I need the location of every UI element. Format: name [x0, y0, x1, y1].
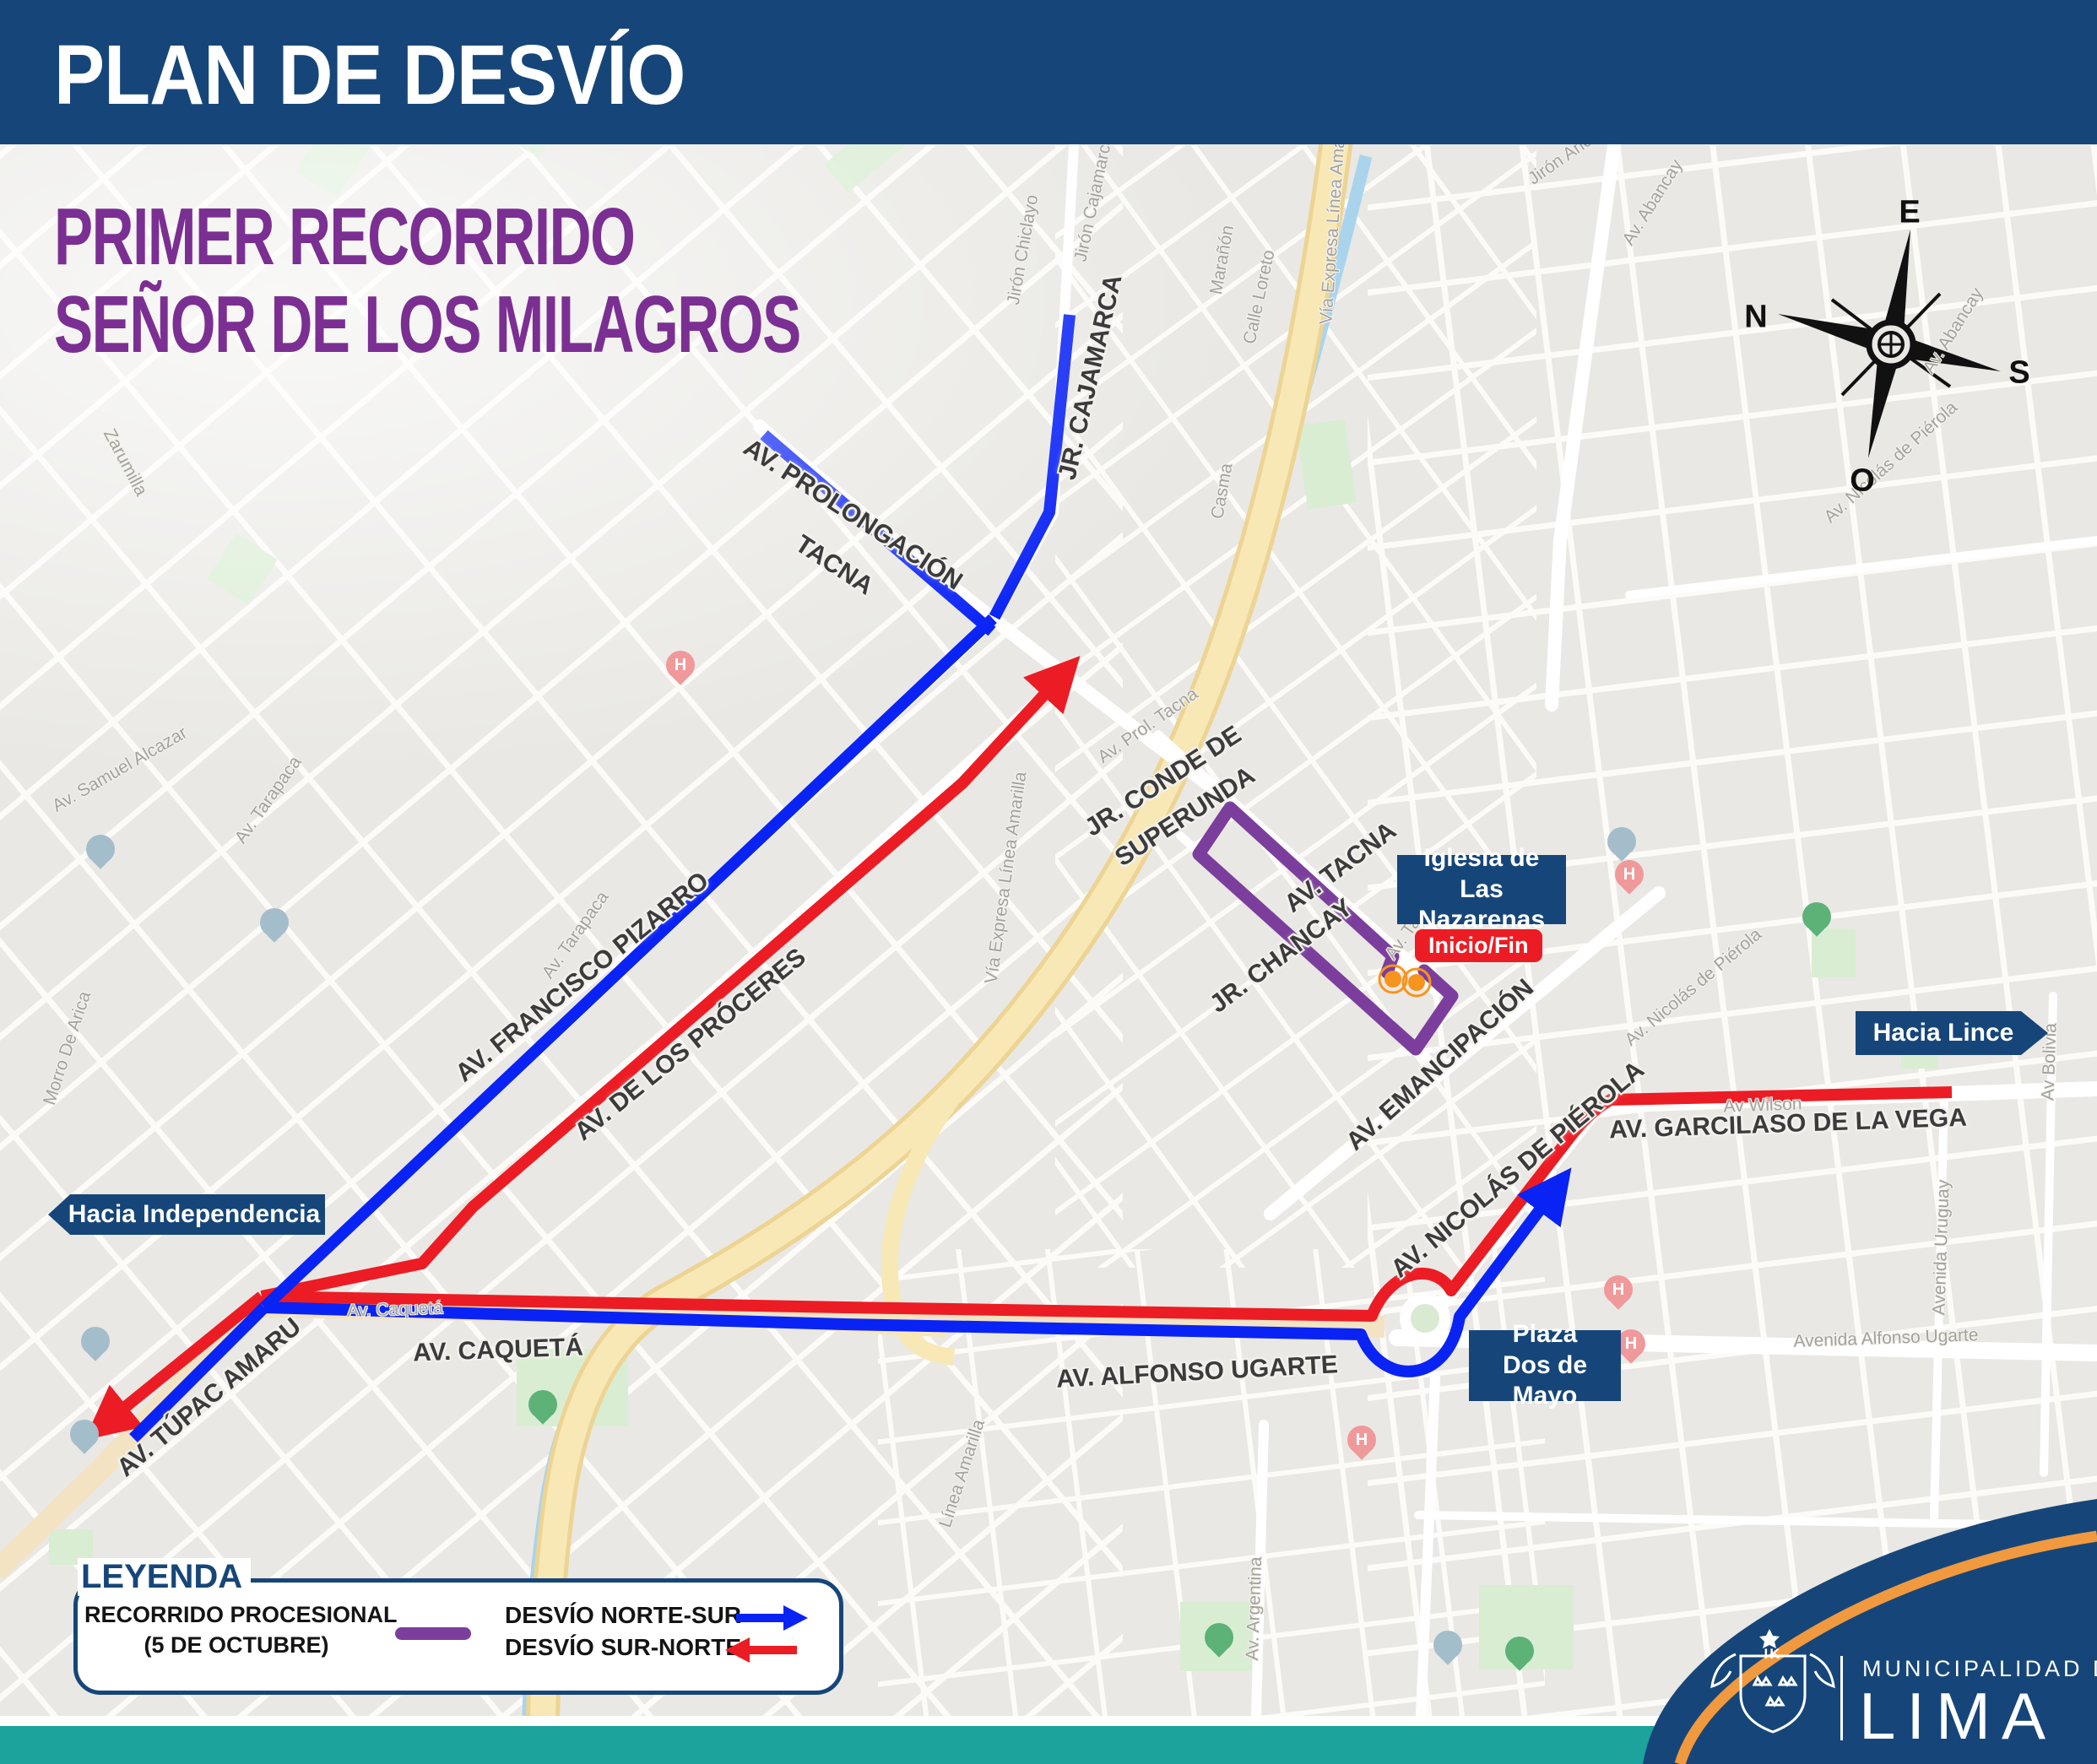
- route-label-caqueta: AV. CAQUETÁ: [413, 1333, 584, 1367]
- plaza-line1: Plaza: [1469, 1319, 1621, 1350]
- legend-purple-line-sample: [395, 1627, 471, 1640]
- landmark-pin-icon: [1433, 1631, 1462, 1659]
- park-pin-icon: [1802, 902, 1831, 931]
- hospital-pin-icon: H: [1347, 1426, 1376, 1454]
- subtitle-line2: SEÑOR DE LOS MILAGROS: [54, 279, 800, 371]
- hospital-letter: H: [675, 656, 686, 675]
- compass-west-label: O: [1850, 463, 1875, 500]
- legend-red-arrow-icon: [736, 1646, 797, 1654]
- compass-south-label: S: [2008, 355, 2029, 392]
- legend-title: LEYENDA: [78, 1558, 251, 1596]
- legend-blue-arrow-icon: [736, 1614, 797, 1622]
- footer-city-label: LIMA: [1859, 1678, 2056, 1755]
- hospital-pin-icon: H: [1617, 1329, 1645, 1358]
- hacia-independencia-label: Hacia Independencia: [63, 1199, 325, 1231]
- landmark-pin-icon: [1607, 827, 1636, 856]
- park-pin-icon: [528, 1390, 557, 1419]
- legend-norte-sur-label: DESVÍO NORTE-SUR: [505, 1602, 741, 1629]
- subtitle-line1: PRIMER RECORRIDO: [54, 191, 634, 284]
- coat-monogram: IK: [1764, 1646, 1782, 1663]
- compass-east-label: E: [1899, 195, 1920, 231]
- footer-divider: [1840, 1656, 1843, 1740]
- hospital-pin-icon: H: [1604, 1275, 1633, 1304]
- plaza-dos-de-mayo-badge: Plaza Dos de Mayo: [1469, 1330, 1621, 1401]
- roundabout-plaza-dos-de-mayo: [1400, 1293, 1450, 1344]
- plan-de-desvio-infographic: PLAN DE DESVÍO PRIMER RECORRIDO SEÑOR DE…: [0, 0, 2097, 1764]
- hospital-pin-icon: H: [1615, 860, 1644, 889]
- landmark-pin-icon: [86, 835, 115, 863]
- legend-sur-norte-label: DESVÍO SUR-NORTE: [505, 1634, 741, 1661]
- header-band: PLAN DE DESVÍO: [0, 0, 2097, 144]
- iglesia-nazarenas-badge: Iglesia de Las Nazarenas: [1397, 855, 1566, 924]
- park-pin-icon: [1505, 1637, 1534, 1665]
- hacia-lince-badge: Hacia Lince: [1856, 1011, 2048, 1055]
- hospital-letter: H: [1356, 1431, 1368, 1450]
- street-label: Av. Argentina: [1243, 1556, 1266, 1661]
- landmark-pin-icon: [260, 908, 289, 937]
- park-pin-icon: [1205, 1623, 1233, 1652]
- hospital-letter: H: [1612, 1280, 1624, 1300]
- inicio-fin-badge: Inicio/Fin: [1415, 929, 1542, 962]
- plaza-line2: Dos de Mayo: [1469, 1350, 1621, 1412]
- legend-procesional-line1: RECORRIDO PROCESIONAL: [84, 1602, 388, 1628]
- street-label: Av. Caquetá: [347, 1298, 443, 1322]
- hospital-letter: H: [1625, 1334, 1637, 1354]
- iglesia-line1: Iglesia de: [1397, 843, 1566, 874]
- iglesia-line2: Las Nazarenas: [1397, 874, 1566, 936]
- hacia-lince-label: Hacia Lince: [1856, 1018, 2031, 1049]
- hospital-letter: H: [1623, 865, 1635, 885]
- landmark-pin-icon: [70, 1420, 99, 1448]
- legend-procesional-line2: (5 DE OCTUBRE): [84, 1632, 388, 1658]
- page-title: PLAN DE DESVÍO: [54, 27, 685, 124]
- hospital-pin-icon: H: [666, 651, 695, 679]
- compass-north-label: N: [1744, 300, 1767, 336]
- hacia-independencia-badge: Hacia Independencia: [48, 1194, 325, 1235]
- landmark-pin-icon: [81, 1327, 110, 1355]
